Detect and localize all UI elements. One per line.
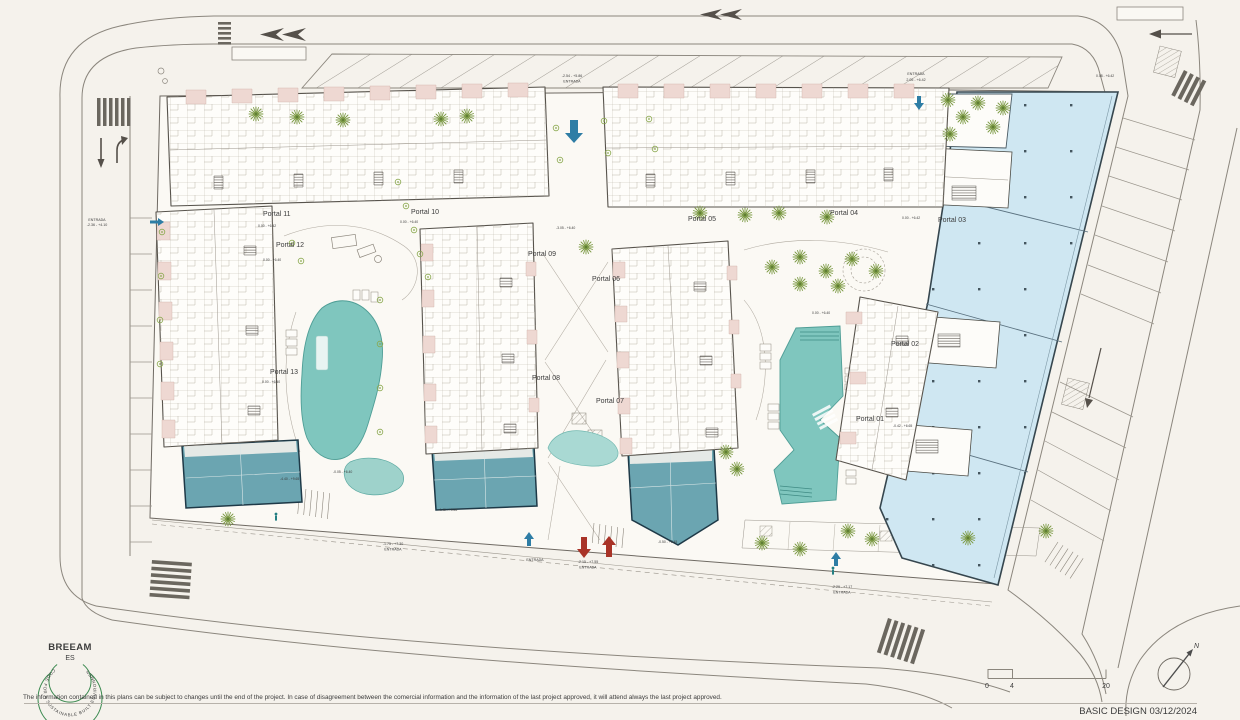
level-label: -4.40 - +9.65 [280,477,299,481]
parking-strip-top [302,54,1062,88]
scale-tick-0: 0 [985,683,989,690]
level-label: 0.00 - +6.42 [258,224,276,228]
disclaimer-text: The information contained in this plans … [23,694,722,701]
level-label: -4.40 - +9.65 [438,508,457,512]
breeam-name: BREEAM [48,642,92,653]
residential-block-mid-a [420,223,538,454]
entrance-label: ENTRADA [526,558,544,562]
portal-label-01: Portal 01 [856,416,884,423]
level-label: -0.05 - +6.40 [333,470,352,474]
entrance-label: ENTRADA [579,566,597,570]
level-label: 0.00 - +6.40 [400,220,418,224]
residential-block-north-east [603,87,949,207]
pool-east [774,326,843,504]
portal-label-11: Portal 11 [263,211,291,218]
portal-label-06: Portal 06 [592,276,620,283]
entrance-elevation: -2.36 - +4.10 [87,223,107,227]
roadside-pad [1117,7,1183,20]
portal-label-08: Portal 08 [532,375,560,382]
portal-label-03: Portal 03 [938,217,966,224]
portal-label-12: Portal 12 [276,242,304,249]
entrance-elevation: 2.05 - +6.42 [906,78,925,82]
level-label: -0.50 - +5.45 [658,540,677,544]
entrance-label: ENTRADA [907,72,925,76]
entrance-elevation: -2.15 - +7.55 [578,560,598,564]
level-label: 0.00 - +6.40 [262,380,280,384]
bus-bay-pad [232,47,306,60]
portal-label-07: Portal 07 [596,398,624,405]
level-label: 0.00 - +6.40 [812,311,830,315]
residential-block-mid-b [612,241,738,456]
entrance-label: ENTRADA [88,218,106,222]
level-label: 0.00 - +6.42 [902,216,920,220]
portal-label-05: Portal 05 [688,216,716,223]
residential-block-north-west [167,87,549,206]
portal-label-02: Portal 02 [891,341,919,348]
community-building-1 [182,440,302,508]
level-label: 0.08 - +6.42 [1096,74,1114,78]
level-label: 0.00 - +6.40 [263,258,281,262]
design-stamp: BASIC DESIGN 03/12/2024 [1079,706,1197,717]
entrance-elevation: -2.54 - +5.86 [562,74,582,78]
level-label: -3.05 - +6.40 [556,226,575,230]
breeam-region: ES [65,655,75,662]
site-plan-svg: Portal 01 Portal 02 Portal 03 Portal 04 … [0,0,1240,720]
pool-steps [316,336,328,370]
portal-label-10: Portal 10 [411,209,439,216]
entrance-elevation: -2.29 - +7.17 [832,585,852,589]
entrance-label: ENTRADA [833,591,851,595]
scale-tick-4: 4 [1010,683,1014,690]
site-plan-canvas: Portal 01 Portal 02 Portal 03 Portal 04 … [0,0,1240,720]
portal-label-13: Portal 13 [270,369,298,376]
entrance-label: ENTRADA [563,80,581,84]
portal-label-09: Portal 09 [528,251,556,258]
portal-label-04: Portal 04 [830,210,858,217]
entrance-elevation: -1.75 - +7.30 [383,542,403,546]
entrance-label: ENTRADA [384,548,402,552]
level-label: -0.42 - +6.65 [893,424,912,428]
scale-tick-20: 20 [1102,683,1110,690]
community-building-2 [432,446,537,510]
